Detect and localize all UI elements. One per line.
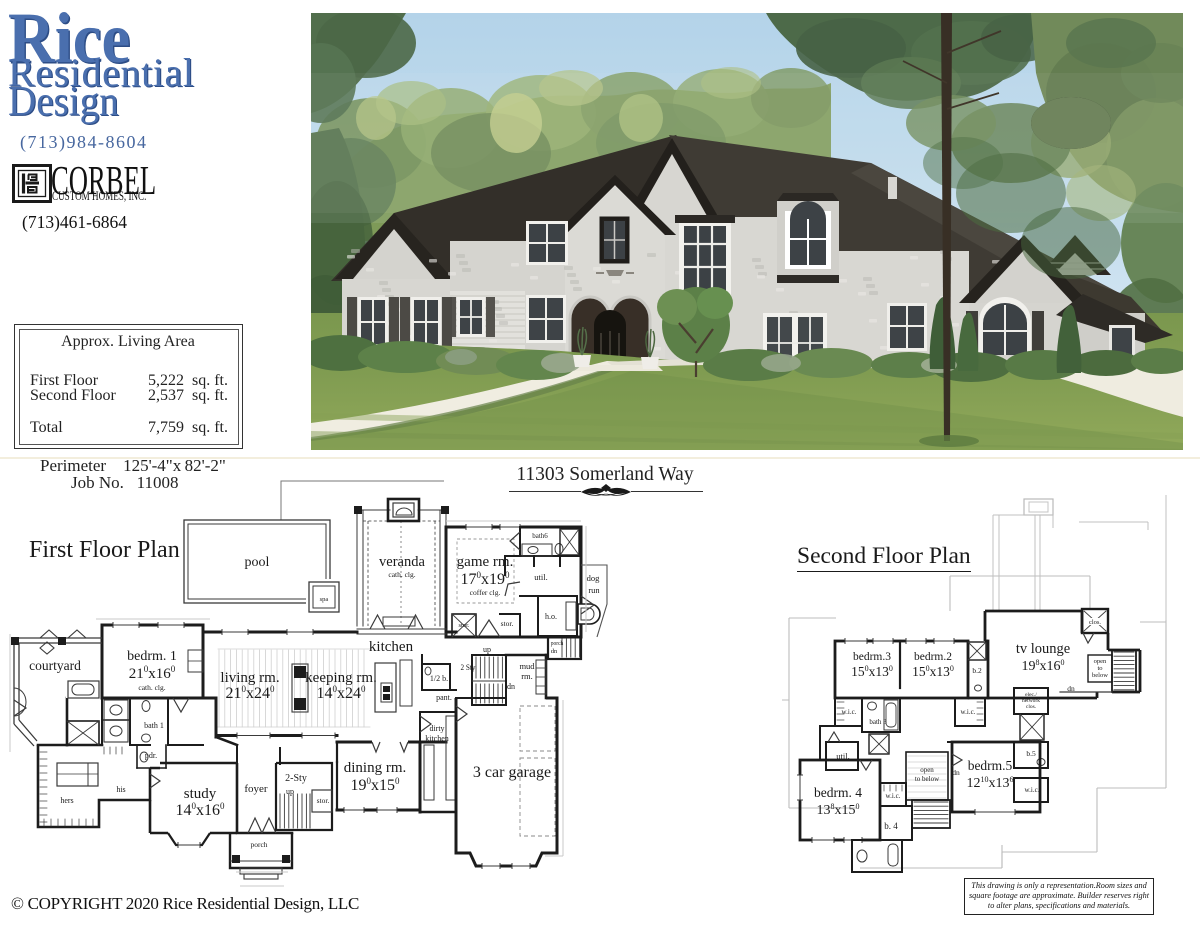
svg-text:bath6: bath6 (532, 532, 548, 540)
svg-text:3 car garage: 3 car garage (473, 764, 551, 781)
svg-text:bath 1: bath 1 (144, 721, 164, 730)
svg-text:198x160: 198x160 (1022, 658, 1065, 674)
svg-text:1210x136: 1210x136 (967, 775, 1014, 791)
svg-text:spa: spa (320, 596, 329, 603)
svg-text:b. 4: b. 4 (884, 821, 898, 831)
svg-text:dog: dog (587, 573, 601, 583)
svg-text:his: his (116, 785, 125, 794)
svg-text:pdr.: pdr. (145, 751, 157, 760)
svg-text:dining rm.: dining rm. (344, 760, 407, 776)
svg-text:to below: to below (915, 775, 940, 783)
svg-text:w.i.c.: w.i.c. (961, 708, 976, 716)
svg-text:dirty: dirty (429, 724, 444, 733)
svg-text:b.5: b.5 (1026, 749, 1036, 758)
svg-text:study: study (184, 786, 217, 802)
svg-text:kitchen: kitchen (425, 734, 449, 743)
svg-text:veranda: veranda (379, 554, 425, 570)
svg-text:2 Sty: 2 Sty (460, 663, 475, 672)
svg-text:140x240: 140x240 (317, 684, 367, 702)
svg-text:w.i.c.: w.i.c. (842, 708, 857, 716)
svg-text:170x190: 170x190 (461, 570, 511, 588)
svg-text:dn: dn (952, 768, 960, 777)
svg-text:stor.: stor. (501, 619, 514, 628)
svg-text:dn: dn (507, 682, 515, 691)
svg-text:tv lounge: tv lounge (1016, 641, 1070, 657)
svg-text:bedrm. 4: bedrm. 4 (814, 785, 862, 800)
svg-text:util.: util. (534, 572, 547, 582)
svg-text:150x130: 150x130 (851, 664, 893, 679)
svg-text:porch: porch (551, 641, 564, 647)
svg-text:coffer clg.: coffer clg. (470, 588, 501, 597)
svg-text:open: open (1094, 658, 1107, 665)
svg-text:up: up (483, 645, 491, 654)
svg-text:2-Sty: 2-Sty (285, 773, 307, 784)
svg-text:dn: dn (551, 648, 558, 655)
svg-text:bedrm.5: bedrm.5 (968, 758, 1013, 773)
svg-text:stor.: stor. (317, 796, 330, 805)
svg-text:porch: porch (250, 840, 267, 849)
svg-text:pool: pool (245, 555, 270, 570)
svg-text:cath. clg.: cath. clg. (388, 570, 415, 579)
svg-text:run: run (588, 585, 600, 595)
svg-text:rm.: rm. (521, 671, 533, 681)
svg-text:bedrm.2: bedrm.2 (914, 651, 952, 663)
svg-text:bedrm. 1: bedrm. 1 (127, 649, 177, 664)
svg-text:190x150: 190x150 (351, 776, 401, 794)
svg-text:pant.: pant. (436, 693, 452, 702)
svg-text:kitchen: kitchen (369, 639, 414, 655)
svg-text:138x150: 138x150 (817, 802, 860, 818)
svg-text:below: below (1092, 672, 1108, 679)
svg-text:210x240: 210x240 (226, 684, 276, 702)
svg-text:clos.: clos. (1026, 704, 1037, 710)
svg-text:150x130: 150x130 (912, 664, 954, 679)
svg-text:cath. clg.: cath. clg. (138, 683, 165, 692)
svg-text:courtyard: courtyard (29, 658, 81, 673)
svg-text:keeping rm.: keeping rm. (305, 670, 377, 686)
svg-text:1/2 b.: 1/2 b. (430, 674, 448, 683)
svg-text:bath 3: bath 3 (869, 718, 887, 726)
svg-text:h.o.: h.o. (545, 612, 557, 621)
svg-text:up: up (286, 787, 294, 796)
svg-text:to: to (1097, 665, 1102, 672)
svg-text:w.i.c.: w.i.c. (1025, 786, 1040, 794)
svg-text:foyer: foyer (244, 783, 268, 795)
svg-text:140x160: 140x160 (176, 801, 226, 819)
svg-text:open: open (920, 766, 934, 774)
svg-text:mud: mud (519, 661, 535, 671)
svg-text:bedrm.3: bedrm.3 (853, 651, 891, 663)
svg-text:clos.: clos. (1089, 619, 1101, 626)
svg-text:w.i.c.: w.i.c. (886, 792, 901, 800)
svg-text:stor.: stor. (458, 622, 469, 629)
svg-text:210x160: 210x160 (129, 664, 176, 682)
svg-text:b.2: b.2 (972, 666, 982, 675)
svg-text:hers: hers (60, 796, 73, 805)
